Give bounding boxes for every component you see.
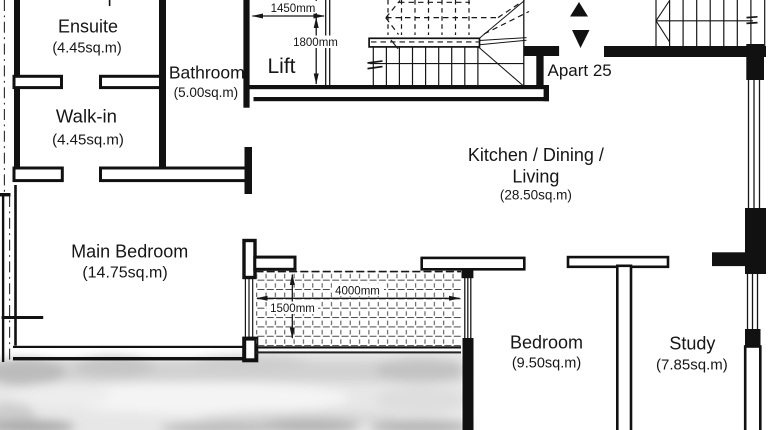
svg-text:Walk-in: Walk-in	[56, 106, 117, 127]
svg-text:4000mm: 4000mm	[335, 286, 380, 298]
svg-text:(7.85sq.m): (7.85sq.m)	[656, 356, 728, 373]
svg-text:1500mm: 1500mm	[270, 303, 315, 315]
svg-text:1800mm: 1800mm	[293, 37, 338, 49]
svg-text:(4.45sq.m): (4.45sq.m)	[52, 40, 121, 56]
svg-text:(9.50sq.m): (9.50sq.m)	[512, 355, 581, 371]
svg-text:Study: Study	[669, 333, 715, 353]
svg-text:(5.00sq.m): (5.00sq.m)	[174, 85, 239, 100]
svg-text:Bathroom: Bathroom	[169, 63, 245, 83]
svg-text:Main Bedroom: Main Bedroom	[71, 241, 188, 261]
svg-text:1450mm: 1450mm	[271, 3, 316, 15]
svg-text:Living: Living	[512, 167, 559, 187]
svg-text:Ensuite: Ensuite	[58, 17, 118, 37]
svg-text:(28.50sq.m): (28.50sq.m)	[500, 188, 572, 203]
svg-text:Bedroom: Bedroom	[510, 332, 583, 352]
svg-text:Kitchen / Dining /: Kitchen / Dining /	[468, 145, 604, 165]
svg-text:(14.75sq.m): (14.75sq.m)	[82, 265, 167, 282]
svg-text:(4.45sq.m): (4.45sq.m)	[52, 131, 124, 148]
svg-text:Lift: Lift	[267, 55, 295, 78]
svg-text:Apart 25: Apart 25	[548, 61, 612, 80]
